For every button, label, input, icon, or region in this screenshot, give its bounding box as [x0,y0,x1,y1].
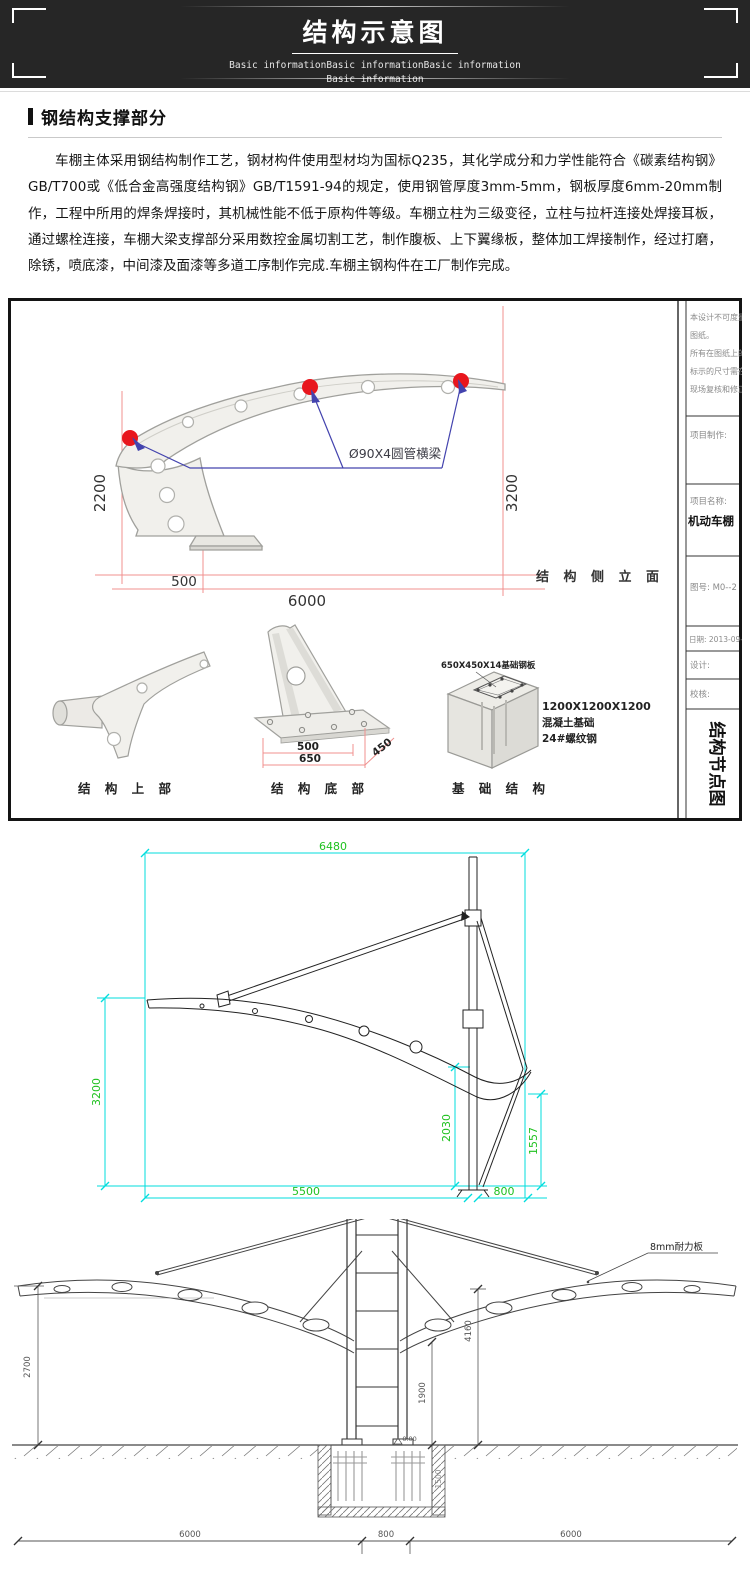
dim-6000: 6000 [288,592,326,610]
base-dim-650: 650 [299,753,321,765]
dim-6000-left: 6000 [179,1530,201,1540]
structure-drawing-panel: Ø90X4圆管横梁 2200 3200 500 6000 结 构 侧 立 面 结… [8,298,742,825]
cad-dim-3200: 3200 [90,1078,103,1106]
panel-callout: 8mm耐力板 [587,1241,718,1283]
tb-note-4: 标示的尺寸需在 [690,366,742,376]
front-dim-ticks [14,1282,736,1545]
dim-2200: 2200 [91,473,109,511]
tb-note-5: 现场复核和修正。 [690,384,742,394]
tb-date: 日期: 2013-09-30 [689,635,742,644]
header-subtitle-line2: Basic information [0,73,750,87]
beam-label: Ø90X4圆管横梁 [349,446,442,461]
plate-label: 650X450X14基础钢板 [441,660,536,671]
front-elevation-figure: 2700 4160 1900 1500 6000 800 6000 -0.00 … [0,1219,750,1570]
page-title: 结构示意图 [292,13,457,54]
tb-checker: 校核: [690,689,710,700]
cad-dim-5500: 5500 [292,1185,320,1198]
corner-bracket-bottom-left-icon [12,63,46,78]
dim-1500: 1500 [434,1469,443,1488]
cad-dim-6480: 6480 [319,840,347,853]
dim-1900: 1900 [418,1382,428,1404]
canopy-arms [18,1219,736,1353]
dim-4160: 4160 [464,1320,474,1342]
cad-side-frame-figure: 6480 3200 2030 1557 5500 800 [0,825,750,1219]
cad-structure [147,857,531,1197]
cad-dim-800: 800 [494,1185,515,1198]
rebar-label: 24#螺纹钢 [542,732,597,745]
intro-section: 钢结构支撑部分 车棚主体采用钢结构制作工艺，钢材构件使用型材均为国标Q235，其… [0,92,750,280]
cad-dim-1557: 1557 [527,1127,540,1155]
dim-2700: 2700 [23,1356,33,1378]
ground-and-foundation [12,1445,738,1517]
corner-bracket-top-right-icon [704,8,738,23]
panel-material-label: 8mm耐力板 [650,1241,704,1253]
dim-500: 500 [171,574,197,590]
section-divider [28,137,722,138]
side-view-label: 结 构 侧 立 面 [536,569,664,585]
tb-note-1: 本设计不可度量 [690,312,742,322]
corner-bracket-top-left-icon [12,8,46,23]
foundation-caption: 基 础 结 构 [451,781,550,796]
dim-800: 800 [378,1530,394,1540]
elevation-drawing: Ø90X4圆管横梁 2200 3200 500 6000 结 构 侧 立 面 结… [8,298,742,821]
bottom-caption: 结 构 底 部 [271,781,369,796]
front-elevation-drawing: 2700 4160 1900 1500 6000 800 6000 -0.00 … [0,1219,750,1566]
tb-name-label: 项目名称: [690,496,727,507]
upper-caption: 结 构 上 部 [78,781,176,796]
header-banner: 结构示意图 Basic informationBasic information… [0,0,750,88]
cad-drawing: 6480 3200 2030 1557 5500 800 [0,825,750,1215]
section-paragraph: 车棚主体采用钢结构制作工艺，钢材构件使用型材均为国标Q235，其化学成分和力学性… [28,148,722,280]
concrete-label: 混凝土基础 [542,716,595,729]
anchor-bolts [333,1451,425,1501]
corner-bracket-bottom-right-icon [704,63,738,78]
page: { "header": { "title": "结构示意图", "subtitl… [0,0,750,1570]
tb-maker-label: 项目制作: [690,430,727,441]
canopy-arm-right [380,1219,736,1353]
tb-project-name: 机动车棚 [688,514,734,528]
section-title: 钢结构支撑部分 [41,104,167,129]
section-title-bar [28,108,33,125]
center-mast [342,1219,413,1445]
tb-note-3: 所有在图纸上的 [690,348,742,358]
cad-dim-2030: 2030 [440,1114,453,1142]
dim-6000-right: 6000 [560,1530,582,1540]
level-mark: -0.00 [400,1435,417,1443]
concrete-dim: 1200X1200X1200 [542,700,651,713]
tb-drawing-no: 图号: M0--2 [690,583,737,593]
dim-3200: 3200 [503,473,521,511]
header-subtitle-line1: Basic informationBasic informationBasic … [0,59,750,73]
tb-designer: 设计: [690,660,710,671]
tb-sheet-title: 结构节点图 [706,721,727,806]
tb-note-2: 图纸。 [690,330,714,340]
header-bottom-line [180,78,570,79]
header-top-line [180,6,570,7]
base-dim-500: 500 [297,741,319,753]
